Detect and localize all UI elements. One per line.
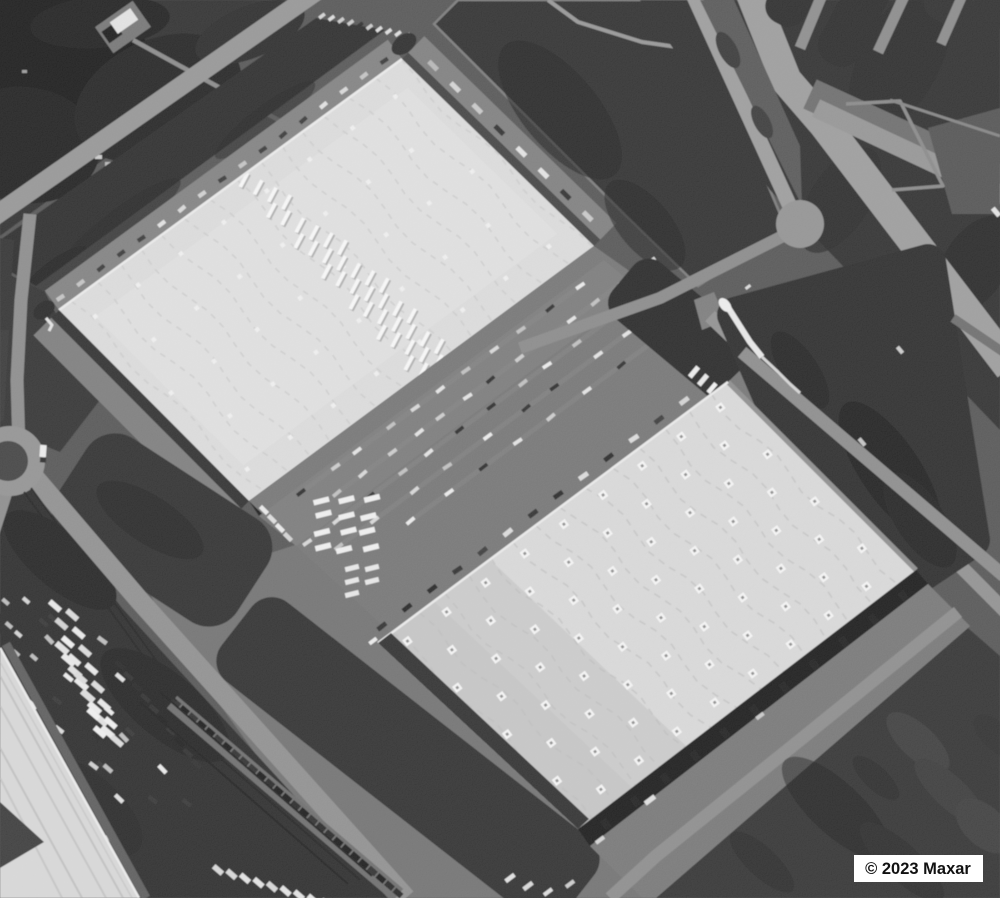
svg-text:© 2023 Maxar: © 2023 Maxar	[865, 860, 971, 878]
